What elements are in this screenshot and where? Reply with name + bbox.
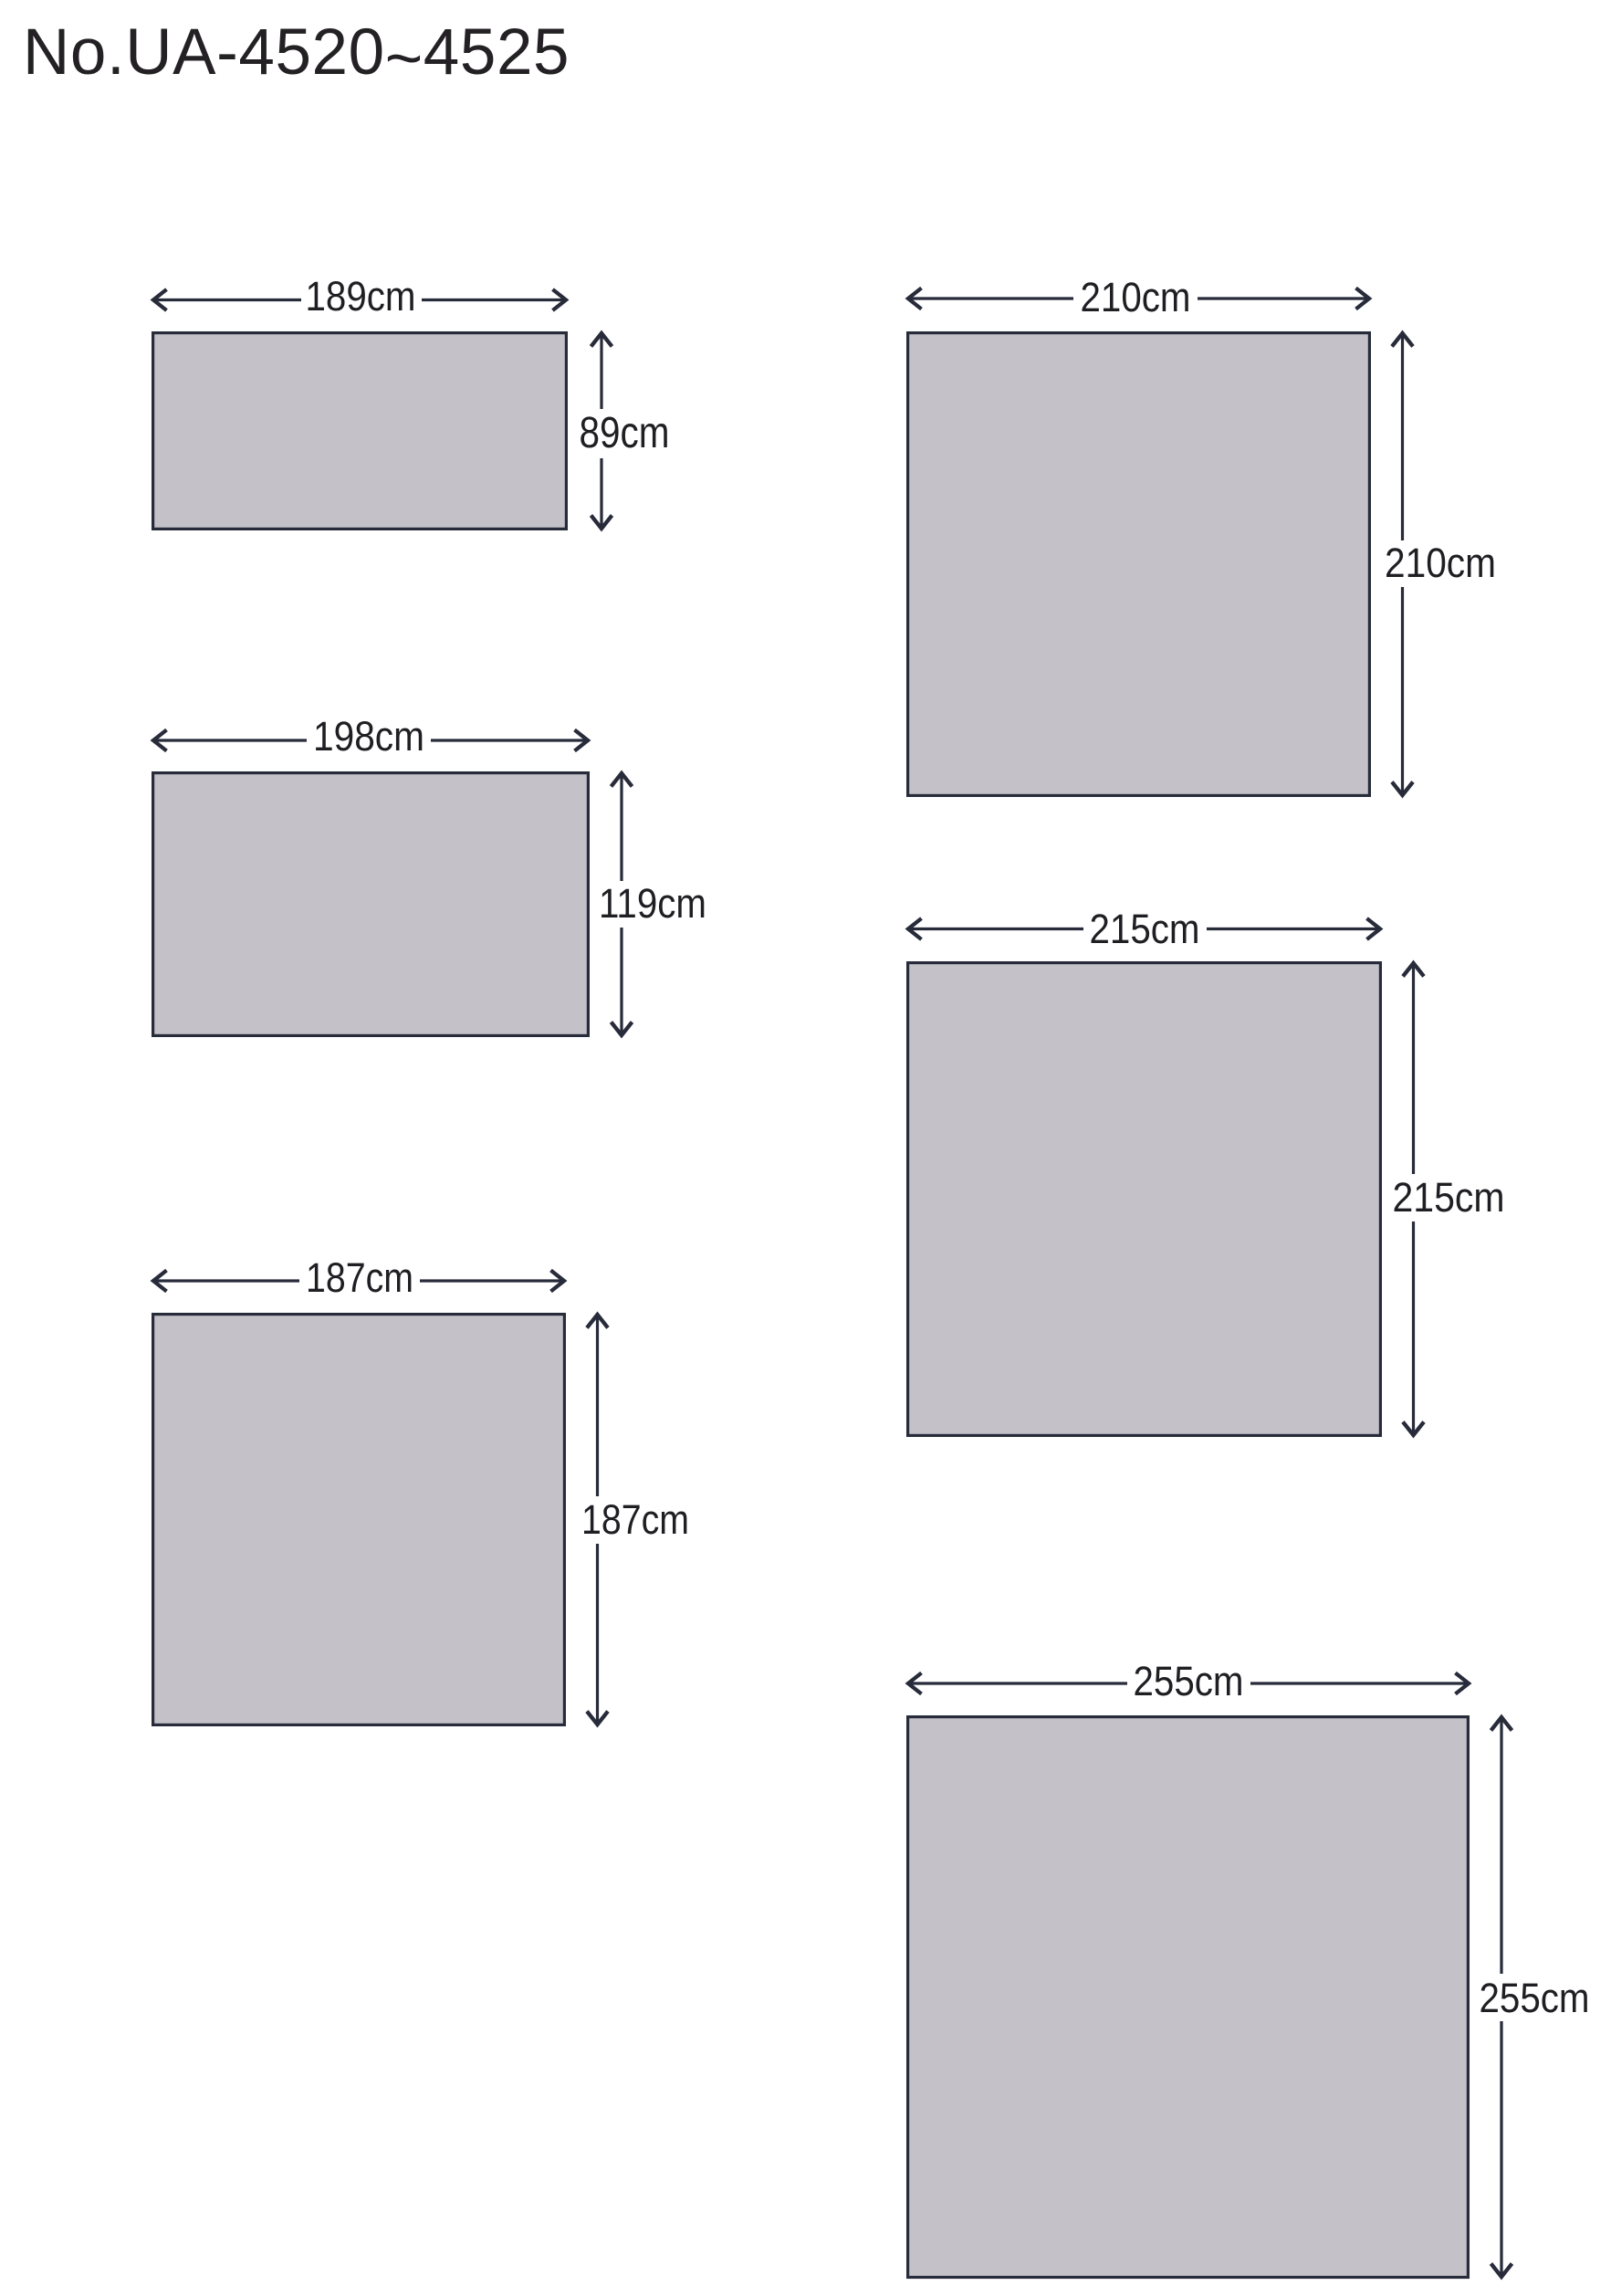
svg-text:210cm: 210cm — [1081, 274, 1191, 320]
svg-text:255cm: 255cm — [1480, 1975, 1590, 2021]
svg-text:189cm: 189cm — [306, 273, 416, 320]
svg-text:215cm: 215cm — [1393, 1174, 1505, 1221]
svg-text:187cm: 187cm — [581, 1496, 689, 1543]
svg-text:198cm: 198cm — [313, 713, 424, 760]
svg-text:187cm: 187cm — [306, 1254, 413, 1301]
svg-text:89cm: 89cm — [580, 409, 670, 457]
svg-text:255cm: 255cm — [1134, 1658, 1244, 1704]
svg-text:215cm: 215cm — [1090, 906, 1200, 952]
svg-text:210cm: 210cm — [1385, 540, 1496, 586]
svg-text:No.UA-4520~4525: No.UA-4520~4525 — [23, 16, 570, 95]
svg-text:119cm: 119cm — [599, 880, 706, 927]
